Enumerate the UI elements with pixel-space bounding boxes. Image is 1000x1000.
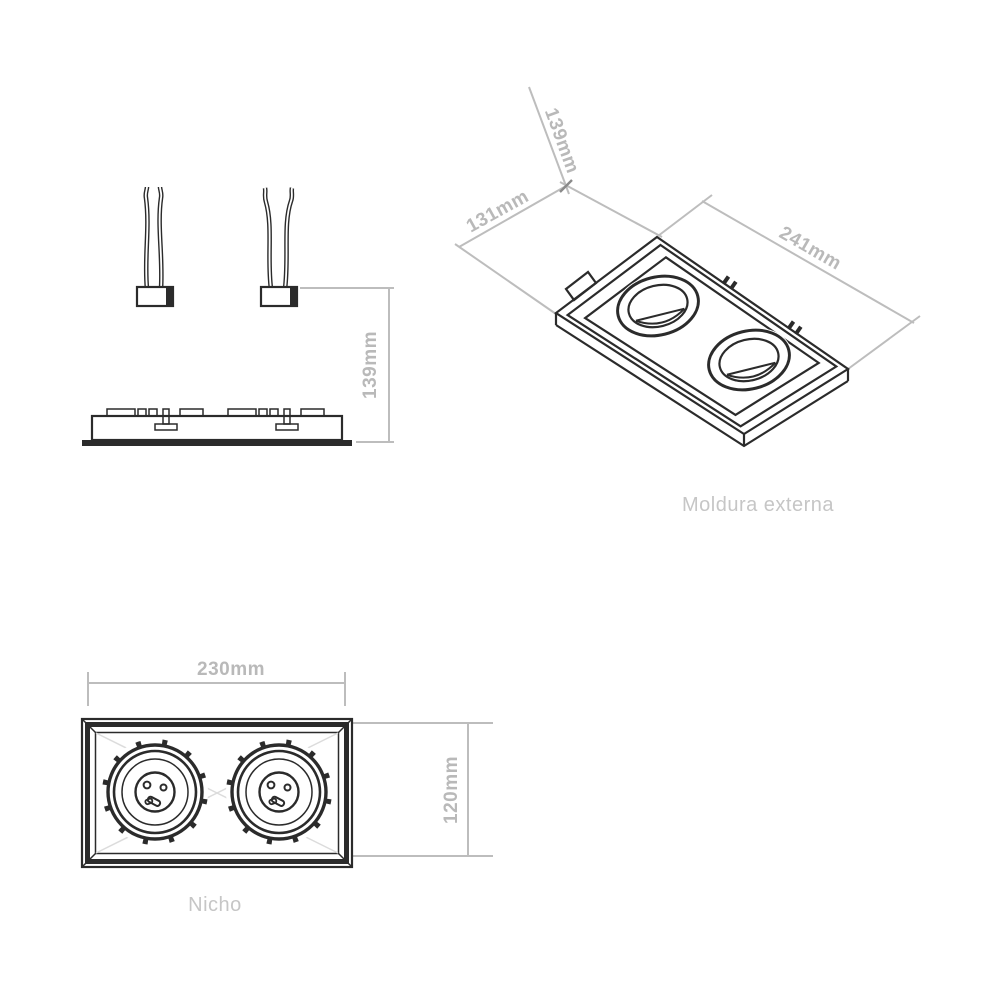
plan-caption: Nicho [188, 894, 242, 916]
dim-label-depth-139: 139mm [540, 105, 583, 176]
dimension-height-120: 120mm [352, 723, 493, 856]
wire-connector-right [261, 188, 297, 306]
dim-label-width-230: 230mm [197, 659, 265, 680]
plan-frame [82, 719, 352, 867]
dimension-tick [560, 180, 572, 192]
plan-lamp-left [99, 736, 211, 848]
drawing-canvas: 139mm 139mm 131mm 241mm [0, 0, 1000, 1000]
iso-frame [556, 237, 848, 446]
ceramic-block-right [261, 287, 297, 306]
plan-lamp-right [223, 736, 335, 848]
isometric-view: 139mm 131mm 241mm [455, 87, 920, 516]
base-plate [82, 440, 352, 446]
ceramic-block-left [137, 287, 173, 306]
plan-view: 230mm 120mm Nicho [82, 659, 493, 916]
fixture-side-profile [82, 409, 352, 446]
dimension-depth-139: 139mm [529, 87, 583, 194]
iso-caption: Moldura externa [682, 494, 834, 516]
dimension-width-230: 230mm [88, 659, 345, 706]
dim-label-height-139: 139mm [360, 331, 381, 399]
technical-drawing-svg: 139mm 139mm 131mm 241mm [0, 0, 1000, 1000]
wire-connector-left [137, 187, 173, 306]
dim-label-height-120: 120mm [441, 756, 462, 824]
side-elevation-view: 139mm [82, 187, 394, 446]
